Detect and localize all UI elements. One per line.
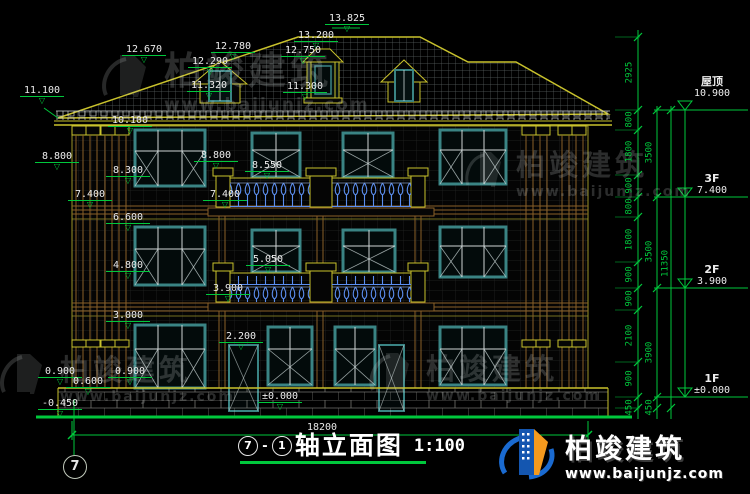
elevation-marker-icon: ▽ xyxy=(206,295,250,302)
title-scale: 1:100 xyxy=(414,436,465,456)
dim-value: 900 xyxy=(625,279,636,319)
level-value: 3.900 xyxy=(684,276,740,288)
brand-text-block: 柏竣建筑 www.baijunjz.com xyxy=(565,427,724,482)
elevation-geometry xyxy=(0,0,750,494)
elevation-label: 8.300▽ xyxy=(106,165,150,184)
dim-value: 11350 xyxy=(661,244,672,284)
window-1f-right xyxy=(440,327,506,385)
level-label: 1F xyxy=(684,373,740,385)
elevation-marker-icon: ▽ xyxy=(194,162,238,169)
cad-elevation-drawing: 13.825▽ 13.200▽ 12.780▽ 12.750▽ 12.670▽ … xyxy=(0,0,750,494)
dim-value: 1800 xyxy=(625,220,636,260)
dim-value: 2100 xyxy=(625,316,636,356)
elevation-label: 6.600▽ xyxy=(106,212,150,231)
elevation-label: 7.400▽ xyxy=(203,189,247,208)
axis-bubble-7: 7 xyxy=(63,455,87,479)
dim-value: 2925 xyxy=(625,53,636,93)
level-flag-roof: 屋顶10.900 xyxy=(684,76,740,100)
brand-url: www.baijunjz.com xyxy=(565,466,724,482)
brand-logo: 柏竣建筑 www.baijunjz.com xyxy=(495,421,724,487)
elevation-label: 4.800▽ xyxy=(106,260,150,279)
title-axis-start-bubble: 7 xyxy=(238,436,258,456)
elevation-marker-icon: ▽ xyxy=(35,163,79,170)
elevation-label: 0.600▽ xyxy=(66,376,110,395)
elevation-label: ±0.000▽ xyxy=(258,391,302,410)
elevation-label: 3.900▽ xyxy=(206,283,250,302)
drawing-title: 7 - 1 轴立面图 1:100 xyxy=(238,433,465,459)
elevation-label: 11.320▽ xyxy=(187,80,231,99)
elevation-marker-icon: ▽ xyxy=(283,93,327,100)
elevation-label: 8.800▽ xyxy=(35,151,79,170)
level-flag-3f: 3F7.400 xyxy=(684,173,740,197)
elevation-label: 5.050▽ xyxy=(246,254,290,273)
window-3f-center-right xyxy=(343,133,393,177)
elevation-marker-icon: ▽ xyxy=(68,201,112,208)
elevation-label: 0.900▽ xyxy=(108,366,152,385)
elevation-marker-icon: ▽ xyxy=(106,272,150,279)
elevation-marker-icon: ▽ xyxy=(258,403,302,410)
elevation-marker-icon: ▽ xyxy=(122,56,166,63)
brand-logo-icon xyxy=(495,421,561,487)
elevation-label: 12.750▽ xyxy=(281,45,325,64)
level-label: 屋顶 xyxy=(684,76,740,88)
level-value: ±0.000 xyxy=(684,385,740,397)
elevation-label: 8.550▽ xyxy=(245,160,289,179)
level-label: 3F xyxy=(684,173,740,185)
elevation-label: 11.100▽ xyxy=(20,85,64,104)
masonry-base xyxy=(58,388,608,417)
elevation-marker-icon: ▽ xyxy=(106,224,150,231)
window-1f-center-right xyxy=(335,327,375,385)
window-2f-right xyxy=(440,227,506,277)
dim-value: 3900 xyxy=(645,333,656,373)
elevation-label: 3.000▽ xyxy=(106,310,150,329)
title-axis-end-bubble: 1 xyxy=(272,436,292,456)
title-dash: - xyxy=(261,439,269,454)
elevation-marker-icon: ▽ xyxy=(38,410,82,417)
dim-value: 3500 xyxy=(645,133,656,173)
elevation-marker-icon: ▽ xyxy=(203,201,247,208)
level-flag-1f: 1F±0.000 xyxy=(684,373,740,397)
elevation-label: 10.100▽ xyxy=(108,115,152,134)
elevation-marker-icon: ▽ xyxy=(106,322,150,329)
elevation-label: 7.400▽ xyxy=(68,189,112,208)
window-2f-center-right xyxy=(343,230,395,272)
elevation-marker-icon: ▽ xyxy=(187,92,231,99)
level-flag-2f: 2F3.900 xyxy=(684,264,740,288)
elevation-marker-icon: ▽ xyxy=(246,266,290,273)
elevation-marker-icon: ▽ xyxy=(106,177,150,184)
window-3f-right xyxy=(440,130,506,184)
elevation-marker-icon: ▽ xyxy=(245,172,289,179)
elevation-label: 8.800▽ xyxy=(194,150,238,169)
elevation-marker-icon: ▽ xyxy=(20,97,64,104)
elevation-marker-icon: ▽ xyxy=(108,127,152,134)
elevation-marker-icon: ▽ xyxy=(108,378,152,385)
elevation-marker-icon: ▽ xyxy=(188,68,232,75)
level-label: 2F xyxy=(684,264,740,276)
level-value: 10.900 xyxy=(684,88,740,100)
dim-value: 3500 xyxy=(645,232,656,272)
title-text: 轴立面图 xyxy=(295,433,403,459)
title-underline xyxy=(240,461,426,464)
elevation-marker-icon: ▽ xyxy=(281,57,325,64)
window-1f-center-left xyxy=(268,327,312,385)
elevation-label: 11.300▽ xyxy=(283,81,327,100)
elevation-label: 12.290▽ xyxy=(188,56,232,75)
elevation-marker-icon: ▽ xyxy=(219,343,263,350)
elevation-label: 12.670▽ xyxy=(122,44,166,63)
level-value: 7.400 xyxy=(684,185,740,197)
elevation-label: 2.200▽ xyxy=(219,331,263,350)
elevation-marker-icon: ▽ xyxy=(66,388,110,395)
brand-name: 柏竣建筑 xyxy=(565,427,724,466)
elevation-label: -0.450▽ xyxy=(38,398,82,417)
